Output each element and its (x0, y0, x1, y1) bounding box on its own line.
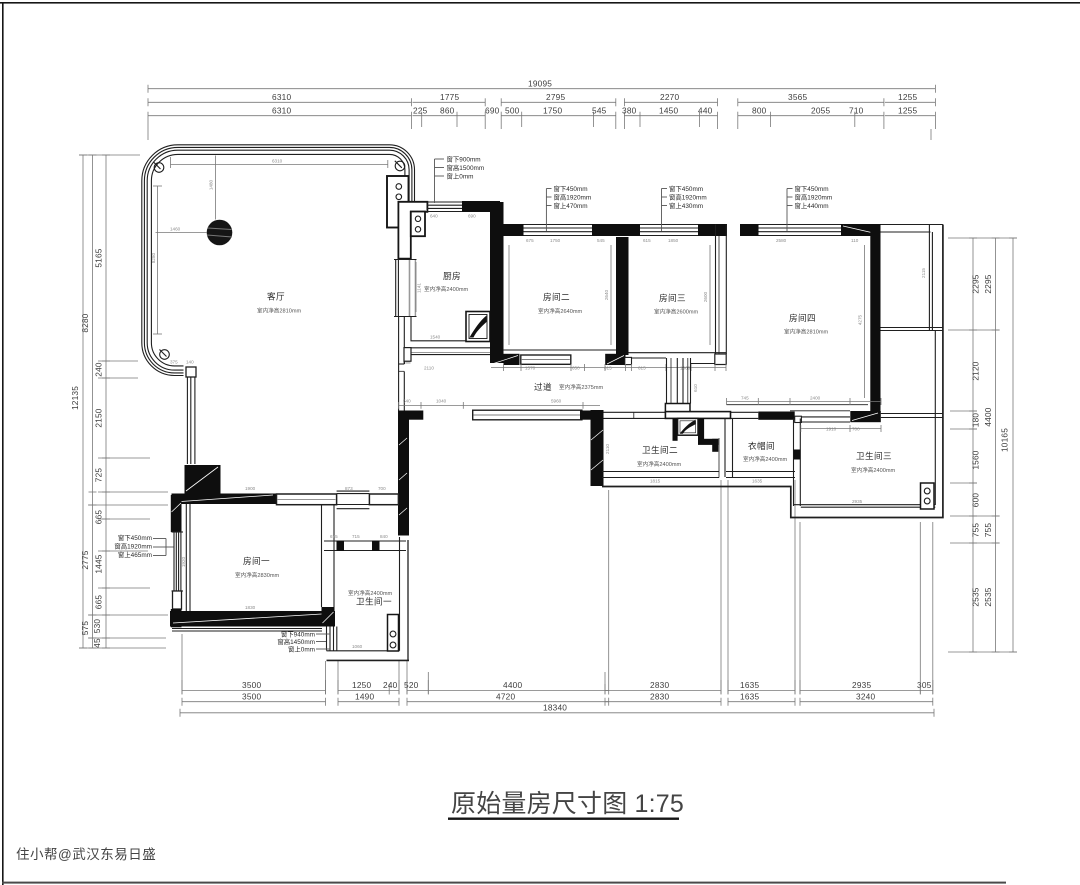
svg-text:1750: 1750 (550, 238, 561, 243)
svg-text:室内净高2830mm: 室内净高2830mm (235, 571, 279, 579)
svg-text:710: 710 (849, 105, 864, 115)
svg-text:2295: 2295 (983, 274, 993, 293)
svg-text:1250: 1250 (352, 680, 371, 690)
svg-text:卫生间三: 卫生间三 (856, 450, 892, 461)
svg-text:房间一: 房间一 (243, 555, 270, 566)
svg-text:2535: 2535 (983, 587, 993, 606)
svg-text:1900: 1900 (245, 486, 256, 491)
svg-text:615: 615 (604, 366, 612, 371)
svg-text:2270: 2270 (660, 92, 679, 102)
svg-text:5960: 5960 (551, 399, 562, 404)
svg-text:2295: 2295 (971, 274, 981, 293)
svg-text:2580: 2580 (776, 238, 787, 243)
svg-text:1850: 1850 (668, 238, 679, 243)
svg-text:室内净高2375mm: 室内净高2375mm (559, 383, 603, 391)
svg-text:窗下450mm: 窗下450mm (795, 184, 829, 193)
svg-text:住小帮@武汉东易日盛: 住小帮@武汉东易日盛 (16, 847, 156, 862)
svg-text:4275: 4275 (858, 314, 863, 325)
svg-text:2120: 2120 (971, 361, 981, 380)
svg-text:窗上430mm: 窗上430mm (669, 201, 703, 210)
svg-text:窗下450mm: 窗下450mm (669, 184, 703, 193)
svg-text:665: 665 (94, 595, 104, 610)
svg-text:2535: 2535 (971, 587, 981, 606)
svg-text:110: 110 (851, 238, 859, 243)
svg-text:690: 690 (468, 214, 476, 219)
svg-text:室内净高2400mm: 室内净高2400mm (743, 455, 787, 463)
svg-text:室内净高2810mm: 室内净高2810mm (784, 328, 828, 336)
svg-text:690: 690 (485, 105, 500, 115)
svg-text:房间三: 房间三 (659, 292, 686, 303)
svg-text:3240: 3240 (856, 691, 875, 701)
svg-text:800: 800 (752, 105, 767, 115)
svg-text:19095: 19095 (528, 79, 552, 89)
svg-text:厨房: 厨房 (443, 270, 461, 281)
svg-text:1060: 1060 (352, 644, 363, 649)
svg-text:1040: 1040 (436, 399, 447, 404)
svg-text:1635: 1635 (740, 691, 759, 701)
svg-text:4400: 4400 (983, 407, 993, 426)
svg-text:18340: 18340 (543, 703, 567, 713)
svg-text:240: 240 (94, 362, 104, 377)
svg-text:卫生间一: 卫生间一 (356, 596, 392, 607)
svg-text:8280: 8280 (151, 252, 156, 263)
svg-text:540: 540 (403, 399, 411, 404)
svg-text:室内净高2400mm: 室内净高2400mm (637, 460, 681, 468)
svg-text:6310: 6310 (272, 159, 283, 164)
svg-text:窗上0mm: 窗上0mm (447, 172, 474, 181)
svg-text:380: 380 (622, 105, 637, 115)
svg-text:3500: 3500 (242, 691, 261, 701)
svg-text:2055: 2055 (811, 105, 830, 115)
svg-text:窗下900mm: 窗下900mm (447, 155, 481, 164)
svg-text:180: 180 (971, 413, 981, 428)
svg-text:2935: 2935 (852, 499, 863, 504)
svg-text:1560: 1560 (971, 450, 981, 469)
svg-text:1060: 1060 (680, 366, 691, 371)
svg-text:2115: 2115 (921, 268, 926, 278)
svg-text:545: 545 (597, 238, 605, 243)
svg-text:600: 600 (971, 493, 981, 508)
svg-text:窗高1920mm: 窗高1920mm (554, 193, 592, 202)
svg-text:室内净高2640mm: 室内净高2640mm (538, 307, 582, 315)
svg-text:窗高1500mm: 窗高1500mm (447, 163, 485, 172)
svg-text:12135: 12135 (70, 386, 80, 410)
svg-text:305: 305 (917, 680, 932, 690)
svg-text:2400: 2400 (810, 396, 821, 401)
svg-text:3565: 3565 (788, 92, 807, 102)
svg-text:房间四: 房间四 (789, 312, 816, 323)
svg-text:1570: 1570 (525, 366, 536, 371)
svg-text:房间二: 房间二 (543, 291, 570, 302)
svg-text:700: 700 (378, 486, 386, 491)
svg-text:4400: 4400 (503, 680, 522, 690)
svg-text:440: 440 (698, 105, 713, 115)
svg-text:1540: 1540 (430, 335, 441, 340)
svg-text:2110: 2110 (605, 444, 610, 454)
svg-text:5165: 5165 (94, 248, 104, 267)
svg-text:650: 650 (572, 366, 580, 371)
svg-text:10165: 10165 (1000, 428, 1010, 452)
svg-text:2935: 2935 (852, 680, 871, 690)
svg-text:375: 375 (170, 360, 178, 365)
svg-text:窗高1450mm: 窗高1450mm (277, 637, 315, 646)
svg-text:745: 745 (741, 396, 749, 401)
svg-text:室内净高2400mm: 室内净高2400mm (851, 466, 895, 474)
svg-text:6310: 6310 (272, 105, 291, 115)
svg-text:700: 700 (852, 427, 860, 432)
svg-text:640: 640 (430, 214, 438, 219)
svg-text:665: 665 (94, 510, 104, 525)
svg-text:窗下940mm: 窗下940mm (281, 630, 315, 639)
svg-text:1750: 1750 (543, 105, 562, 115)
svg-text:615: 615 (638, 366, 646, 371)
svg-text:715: 715 (352, 534, 360, 539)
svg-text:窗上0mm: 窗上0mm (288, 645, 315, 654)
svg-text:500: 500 (505, 105, 520, 115)
svg-text:1490: 1490 (355, 691, 374, 701)
svg-text:1141: 1141 (417, 283, 422, 293)
svg-text:2775: 2775 (80, 550, 90, 569)
svg-text:1815: 1815 (650, 479, 661, 484)
svg-text:240: 240 (383, 680, 398, 690)
svg-text:520: 520 (404, 680, 419, 690)
svg-text:1255: 1255 (898, 92, 917, 102)
svg-text:755: 755 (971, 523, 981, 538)
svg-text:室内净高2600mm: 室内净高2600mm (654, 308, 698, 316)
svg-text:客厅: 客厅 (267, 291, 285, 302)
svg-text:室内净高2400mm: 室内净高2400mm (424, 285, 468, 293)
svg-text:窗上465mm: 窗上465mm (118, 550, 152, 559)
svg-text:窗高1920mm: 窗高1920mm (669, 193, 707, 202)
svg-text:2150: 2150 (94, 408, 104, 427)
svg-text:2600: 2600 (703, 291, 708, 302)
svg-text:8280: 8280 (80, 313, 90, 332)
svg-text:873: 873 (345, 486, 353, 491)
svg-text:2795: 2795 (546, 92, 565, 102)
svg-text:3500: 3500 (242, 680, 261, 690)
svg-text:755: 755 (983, 523, 993, 538)
svg-text:1255: 1255 (898, 105, 917, 115)
svg-text:2830: 2830 (650, 680, 669, 690)
svg-text:卫生间二: 卫生间二 (642, 444, 678, 455)
svg-text:615: 615 (643, 238, 651, 243)
svg-text:1450: 1450 (659, 105, 678, 115)
svg-text:室内净高2810mm: 室内净高2810mm (257, 307, 301, 315)
svg-text:窗下450mm: 窗下450mm (118, 533, 152, 542)
svg-text:1635: 1635 (752, 479, 763, 484)
svg-text:545: 545 (592, 105, 607, 115)
svg-text:1460: 1460 (170, 227, 181, 232)
svg-text:窗高1920mm: 窗高1920mm (795, 193, 833, 202)
svg-text:225: 225 (413, 105, 428, 115)
svg-text:2110: 2110 (424, 366, 434, 371)
svg-text:840: 840 (380, 534, 388, 539)
svg-text:530: 530 (92, 619, 102, 634)
svg-text:原始量房尺寸图 1:75: 原始量房尺寸图 1:75 (451, 790, 684, 818)
svg-text:窗上440mm: 窗上440mm (795, 201, 829, 210)
svg-text:610: 610 (693, 384, 698, 392)
svg-text:6310: 6310 (272, 92, 291, 102)
svg-text:1635: 1635 (740, 680, 759, 690)
svg-text:1445: 1445 (94, 554, 104, 573)
svg-text:1920: 1920 (181, 556, 186, 567)
svg-text:140: 140 (186, 360, 194, 365)
svg-text:窗上470mm: 窗上470mm (554, 201, 588, 210)
svg-text:窗下450mm: 窗下450mm (554, 184, 588, 193)
svg-text:1910: 1910 (826, 427, 837, 432)
svg-text:窗高1920mm: 窗高1920mm (114, 542, 152, 551)
svg-text:4720: 4720 (496, 691, 515, 701)
svg-text:675: 675 (330, 534, 338, 539)
svg-text:45: 45 (92, 638, 102, 648)
svg-text:725: 725 (94, 468, 104, 483)
svg-text:675: 675 (526, 238, 534, 243)
svg-text:1480: 1480 (209, 179, 214, 190)
svg-text:1830: 1830 (245, 605, 256, 610)
svg-text:2640: 2640 (604, 289, 609, 300)
svg-text:575: 575 (80, 621, 90, 636)
svg-text:过道: 过道 (534, 381, 552, 392)
svg-text:1775: 1775 (440, 92, 459, 102)
svg-text:2830: 2830 (650, 691, 669, 701)
svg-text:衣帽间: 衣帽间 (748, 440, 775, 451)
svg-text:860: 860 (440, 105, 455, 115)
